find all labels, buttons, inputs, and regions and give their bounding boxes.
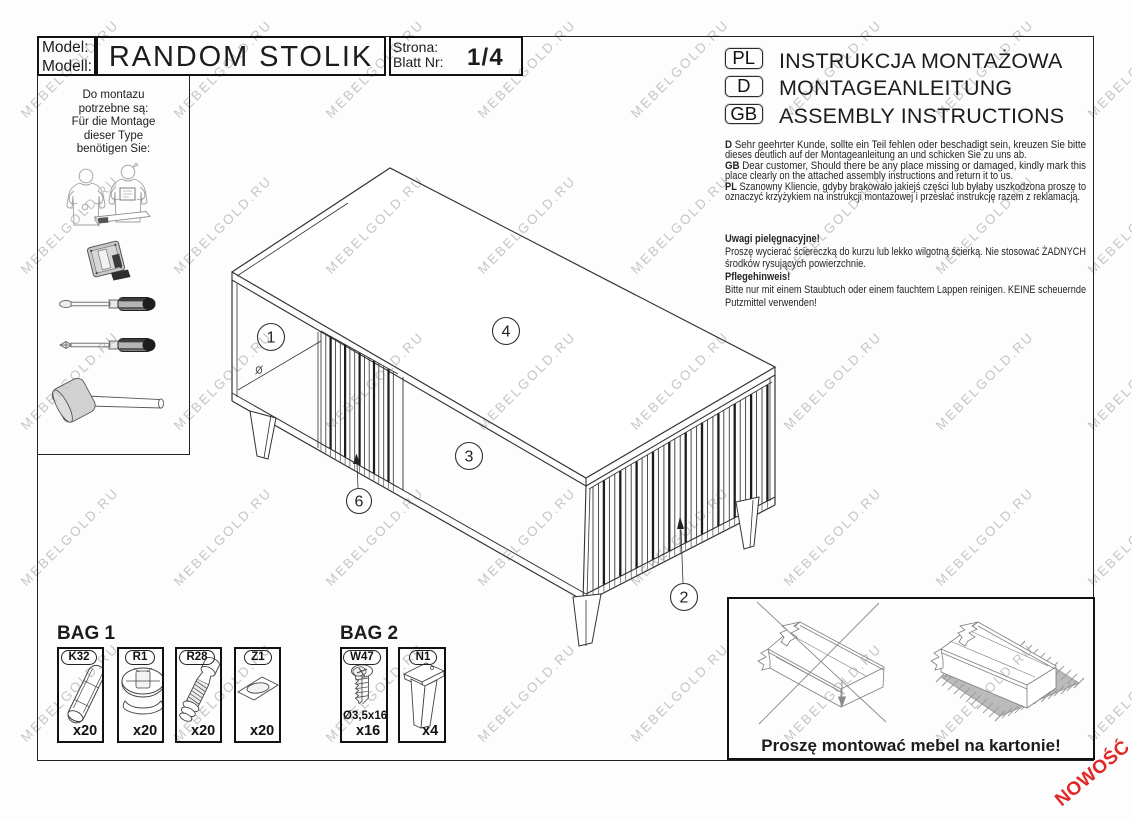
svg-text:MEBELGOLD.RU: MEBELGOLD.RU xyxy=(628,17,732,121)
svg-text:MEBELGOLD.RU: MEBELGOLD.RU xyxy=(18,485,122,589)
svg-text:MEBELGOLD.RU: MEBELGOLD.RU xyxy=(323,173,427,277)
svg-text:MEBELGOLD.RU: MEBELGOLD.RU xyxy=(628,329,732,433)
svg-text:MEBELGOLD.RU: MEBELGOLD.RU xyxy=(18,641,122,745)
svg-text:MEBELGOLD.RU: MEBELGOLD.RU xyxy=(475,485,579,589)
svg-text:MEBELGOLD.RU: MEBELGOLD.RU xyxy=(933,173,1037,277)
svg-text:MEBELGOLD.RU: MEBELGOLD.RU xyxy=(475,329,579,433)
svg-text:MEBELGOLD.RU: MEBELGOLD.RU xyxy=(933,641,1037,745)
svg-text:MEBELGOLD.RU: MEBELGOLD.RU xyxy=(18,173,122,277)
svg-text:MEBELGOLD.RU: MEBELGOLD.RU xyxy=(933,17,1037,121)
svg-text:MEBELGOLD.RU: MEBELGOLD.RU xyxy=(628,485,732,589)
svg-text:MEBELGOLD.RU: MEBELGOLD.RU xyxy=(1085,329,1132,433)
svg-text:MEBELGOLD.RU: MEBELGOLD.RU xyxy=(781,329,885,433)
svg-text:MEBELGOLD.RU: MEBELGOLD.RU xyxy=(323,17,427,121)
svg-text:MEBELGOLD.RU: MEBELGOLD.RU xyxy=(171,17,275,121)
svg-text:MEBELGOLD.RU: MEBELGOLD.RU xyxy=(1085,173,1132,277)
svg-text:MEBELGOLD.RU: MEBELGOLD.RU xyxy=(781,17,885,121)
svg-text:MEBELGOLD.RU: MEBELGOLD.RU xyxy=(1085,485,1132,589)
svg-text:MEBELGOLD.RU: MEBELGOLD.RU xyxy=(475,641,579,745)
svg-text:MEBELGOLD.RU: MEBELGOLD.RU xyxy=(18,17,122,121)
svg-text:MEBELGOLD.RU: MEBELGOLD.RU xyxy=(323,641,427,745)
svg-text:MEBELGOLD.RU: MEBELGOLD.RU xyxy=(628,641,732,745)
svg-text:MEBELGOLD.RU: MEBELGOLD.RU xyxy=(781,173,885,277)
svg-text:MEBELGOLD.RU: MEBELGOLD.RU xyxy=(323,329,427,433)
svg-text:MEBELGOLD.RU: MEBELGOLD.RU xyxy=(171,485,275,589)
svg-text:MEBELGOLD.RU: MEBELGOLD.RU xyxy=(323,485,427,589)
svg-text:MEBELGOLD.RU: MEBELGOLD.RU xyxy=(933,329,1037,433)
svg-text:MEBELGOLD.RU: MEBELGOLD.RU xyxy=(628,173,732,277)
svg-text:MEBELGOLD.RU: MEBELGOLD.RU xyxy=(171,329,275,433)
svg-text:MEBELGOLD.RU: MEBELGOLD.RU xyxy=(781,485,885,589)
svg-text:MEBELGOLD.RU: MEBELGOLD.RU xyxy=(171,641,275,745)
svg-text:MEBELGOLD.RU: MEBELGOLD.RU xyxy=(781,641,885,745)
svg-text:MEBELGOLD.RU: MEBELGOLD.RU xyxy=(18,329,122,433)
svg-text:MEBELGOLD.RU: MEBELGOLD.RU xyxy=(1085,17,1132,121)
svg-text:MEBELGOLD.RU: MEBELGOLD.RU xyxy=(171,173,275,277)
svg-text:MEBELGOLD.RU: MEBELGOLD.RU xyxy=(475,173,579,277)
svg-text:MEBELGOLD.RU: MEBELGOLD.RU xyxy=(1085,641,1132,745)
svg-text:MEBELGOLD.RU: MEBELGOLD.RU xyxy=(475,17,579,121)
svg-text:MEBELGOLD.RU: MEBELGOLD.RU xyxy=(933,485,1037,589)
